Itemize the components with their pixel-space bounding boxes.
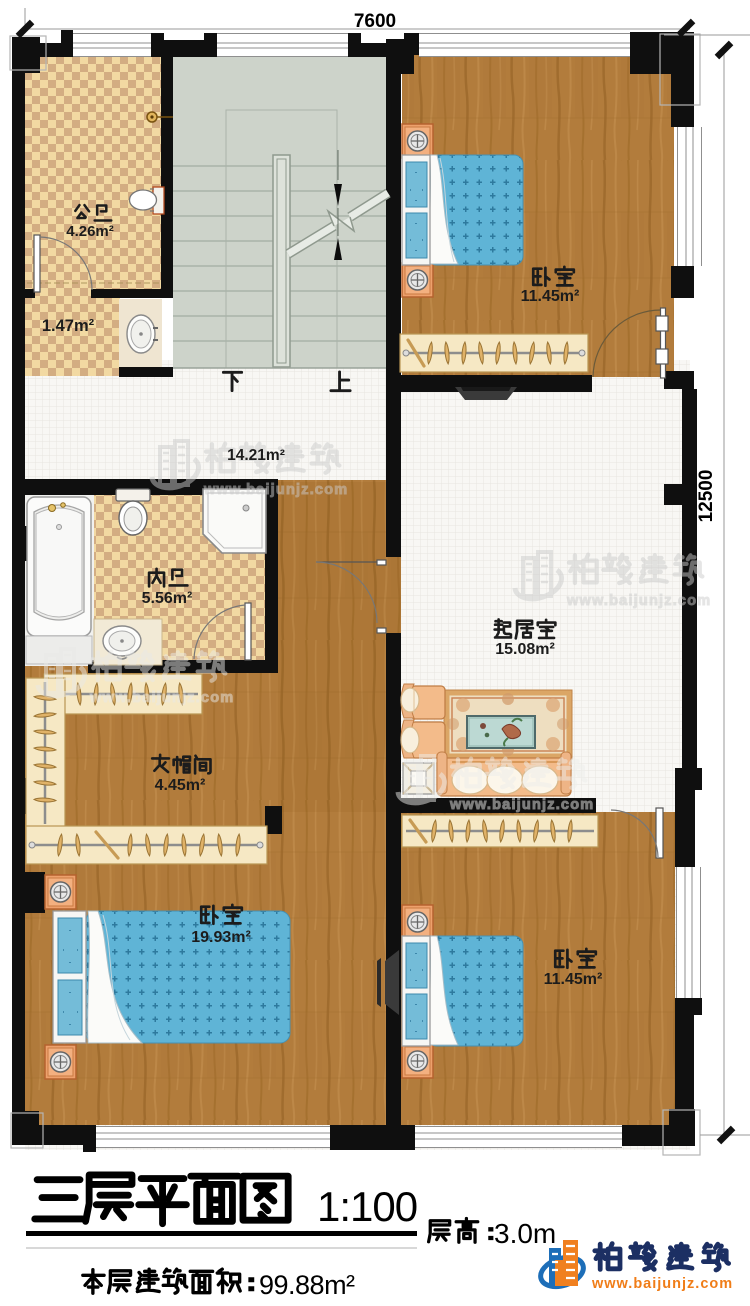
svg-text:www.baijunjz.com: www.baijunjz.com <box>591 1276 733 1292</box>
svg-text:14.21m²: 14.21m² <box>227 447 285 464</box>
svg-text:19.93m²: 19.93m² <box>191 929 251 946</box>
svg-text:1.47m²: 1.47m² <box>42 317 95 335</box>
svg-text:15.08m²: 15.08m² <box>495 641 555 658</box>
svg-text:11.45m²: 11.45m² <box>544 971 603 988</box>
svg-text:12500: 12500 <box>696 470 717 523</box>
svg-text:99.88m²: 99.88m² <box>259 1270 355 1300</box>
svg-text:11.45m²: 11.45m² <box>521 288 580 305</box>
svg-text:1:100: 1:100 <box>317 1183 417 1230</box>
svg-text:4.26m²: 4.26m² <box>66 223 114 240</box>
svg-text:3.0m: 3.0m <box>494 1218 556 1249</box>
svg-text:4.45m²: 4.45m² <box>155 777 206 794</box>
svg-text:5.56m²: 5.56m² <box>142 590 193 607</box>
svg-text:7600: 7600 <box>354 11 396 32</box>
